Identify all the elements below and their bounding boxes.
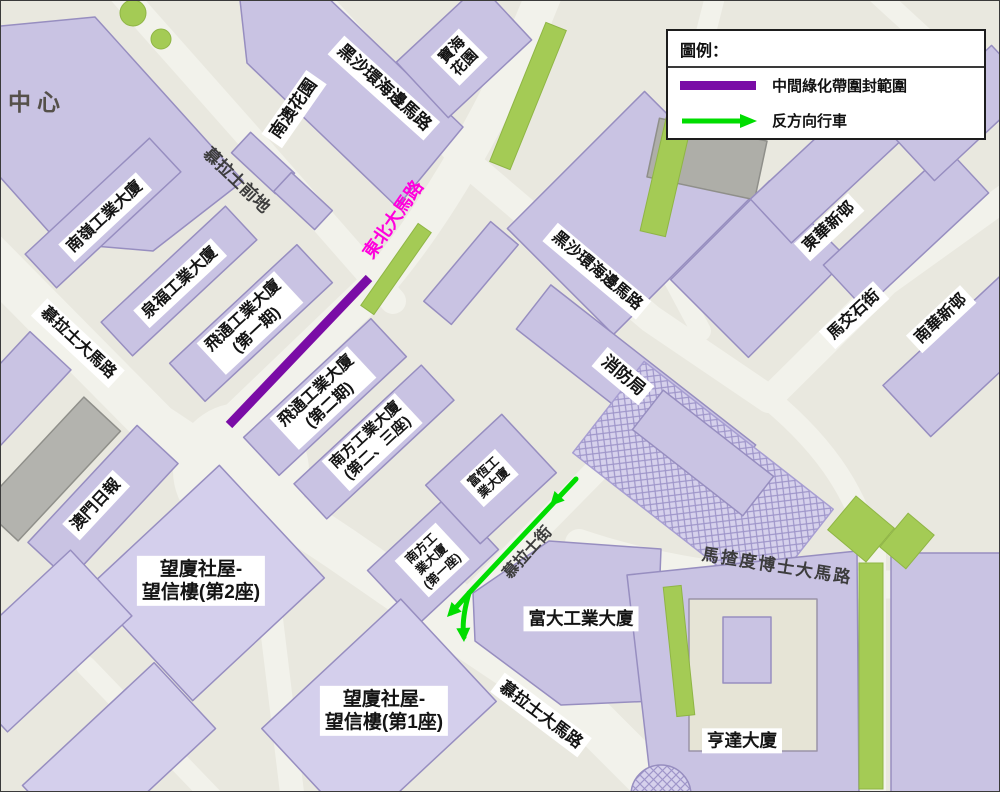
label-mong-ha-block1: 望廈社屋- 望信樓(第1座) [320, 686, 448, 736]
label-line: 望信樓(第2座) [142, 581, 260, 604]
label-fu-tai-ind: 富大工業大廈 [524, 606, 639, 631]
legend-item-closure: 中間綠化帶圍封範圍 [668, 68, 984, 103]
legend-box: 圖例： 中間綠化帶圍封範圍 反方向行車 [666, 29, 986, 140]
label-hang-tat: 亨達大廈 [702, 728, 782, 753]
legend-item-reverse: 反方向行車 [668, 103, 984, 138]
label-line: 望廈社屋- [325, 688, 443, 711]
label-line: 望信樓(第1座) [325, 711, 443, 734]
legend-item-label: 中間綠化帶圍封範圍 [772, 75, 907, 96]
green-arrow-icon [680, 113, 758, 129]
purple-line-swatch [680, 81, 758, 90]
legend-item-label: 反方向行車 [772, 110, 847, 131]
street-map: 中心 南澳花園 黑沙環海邊馬路 寶海 花園 慕拉士前地 東北大馬路 南嶺工業大廈… [0, 0, 1000, 792]
legend-title: 圖例： [668, 31, 984, 66]
label-line: 望廈社屋- [142, 558, 260, 581]
green-arrow-swatch [680, 113, 758, 129]
label-mong-ha-block2: 望廈社屋- 望信樓(第2座) [137, 556, 265, 606]
label-centre-partial: 中心 [8, 88, 66, 116]
